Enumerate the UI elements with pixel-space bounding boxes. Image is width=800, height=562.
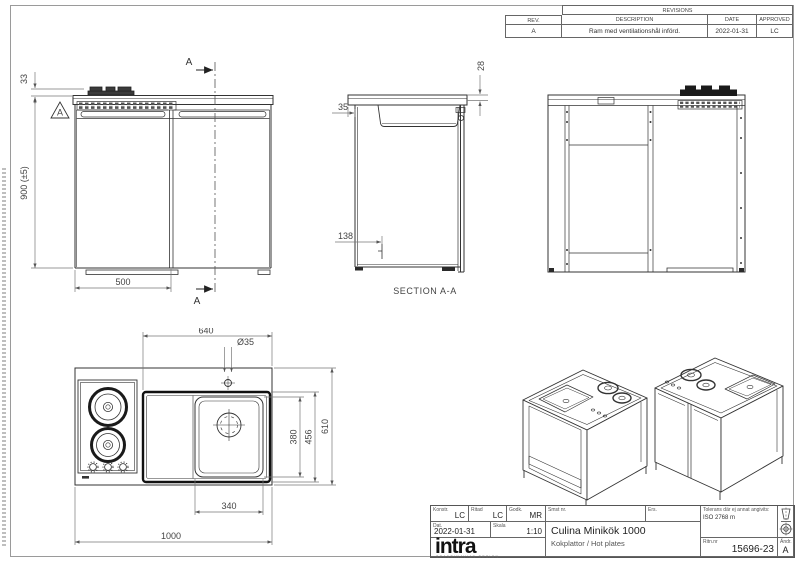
konstr-label: Konstr.: [433, 507, 449, 513]
revision-row-rev: A: [505, 25, 562, 38]
revision-row-date: 2022-01-31: [708, 25, 757, 38]
smst-label: Smst nr.: [548, 507, 566, 513]
titleblock-tolerance-cell: Tolerans där ej annat angivits: ISO 2768…: [701, 506, 778, 538]
titleblock-konstr-cell: Konstr. LC: [431, 506, 469, 522]
ritad-value: LC: [493, 511, 503, 520]
product-title: Culina Minikök 1000: [551, 525, 646, 537]
dim-overhang: 35: [338, 102, 348, 112]
titleblock-godk-cell: Godk. MR: [507, 506, 546, 522]
konstr-value: LC: [455, 511, 465, 520]
intra-logo-tagline: SCANDINAVIAN DESIGN: [431, 555, 545, 559]
titleblock-logo-cell: intra SCANDINAVIAN DESIGN: [431, 538, 546, 557]
tolerance-label: Tolerans där ej annat angivits:: [703, 507, 769, 513]
intra-logo: intra: [431, 538, 545, 555]
godk-label: Godk.: [509, 507, 522, 513]
titleblock-rev-cell: Ändr. A: [778, 538, 794, 557]
revisions-header-date: DATE: [708, 15, 757, 25]
rev-value: A: [778, 545, 793, 555]
revisions-header-rev: REV.: [505, 15, 562, 25]
dim-counter-edge: 28: [476, 61, 486, 71]
titleblock-drawingno-cell: Ritn.nr 15696-23: [701, 538, 778, 557]
titleblock-projection-cell: [778, 506, 794, 538]
isometric-view-front: [645, 340, 795, 510]
dim-total-depth: 610: [320, 419, 330, 434]
plan-view-drawing: 640 Ø35 340 1000 380 456 610: [58, 328, 368, 553]
front-view-drawing: A A A 33 900 (±5) 500: [18, 48, 318, 308]
drawing-no-label: Ritn.nr: [703, 539, 718, 545]
titleblock-ritad-cell: Ritad LC: [469, 506, 507, 522]
titleblock-ers-cell: Ers.: [646, 506, 701, 522]
dim-bowl-depth: 380: [289, 429, 299, 444]
section-view-title: SECTION A-A: [393, 286, 457, 296]
scale-value: 1:10: [526, 527, 542, 536]
dim-total-height: 900 (±5): [19, 166, 29, 199]
godk-value: MR: [530, 511, 542, 520]
drawing-sheet: REVISIONS REV. DESCRIPTION DATE APPROVED…: [0, 0, 800, 562]
revisions-header-description: DESCRIPTION: [562, 15, 708, 25]
revision-marker-letter: A: [57, 108, 63, 118]
projection-symbol-icon: [778, 506, 794, 537]
section-view-drawing: 28 35 138 SECTION A-A: [330, 48, 500, 308]
revisions-header-approved: APPROVED: [757, 15, 793, 25]
ritad-label: Ritad: [471, 507, 483, 513]
revision-triangle-marker: A: [51, 102, 69, 118]
dim-left-door-width: 500: [115, 277, 130, 287]
dim-bowl-width: 340: [221, 501, 236, 511]
tolerance-value: ISO 2768 m: [703, 515, 735, 521]
drawing-no-value: 15696-23: [732, 544, 774, 555]
dim-module-depth: 456: [304, 429, 314, 444]
revisions-title: REVISIONS: [562, 5, 793, 15]
titleblock-product-cell: Culina Minikök 1000 Kokplattor / Hot pla…: [546, 522, 701, 557]
dim-recess: 138: [338, 231, 353, 241]
revision-row-description: Ram med ventilationshål införd.: [562, 25, 708, 38]
product-subtitle: Kokplattor / Hot plates: [551, 539, 625, 548]
dim-hob-height: 33: [19, 74, 29, 84]
title-block: Konstr. LC Ritad LC Godk. MR Dat. 2022-0…: [430, 505, 795, 558]
titleblock-scale-cell: Skala 1:10: [491, 522, 546, 538]
dim-module-width: 640: [198, 328, 213, 336]
dim-total-width: 1000: [161, 531, 181, 541]
scale-label: Skala: [493, 523, 506, 529]
section-arrow-top-label: A: [186, 57, 193, 68]
isometric-view-back: [505, 348, 655, 508]
left-margin-micro-text: [2, 168, 6, 546]
ers-label: Ers.: [648, 507, 657, 513]
revisions-table: REVISIONS REV. DESCRIPTION DATE APPROVED…: [505, 5, 793, 38]
section-arrow-bottom-label: A: [194, 296, 201, 307]
revision-row-approved: LC: [757, 25, 793, 38]
back-view-drawing: [540, 78, 755, 283]
titleblock-smst-cell: Smst nr.: [546, 506, 646, 522]
dim-tap-hole-diameter: Ø35: [237, 337, 254, 347]
